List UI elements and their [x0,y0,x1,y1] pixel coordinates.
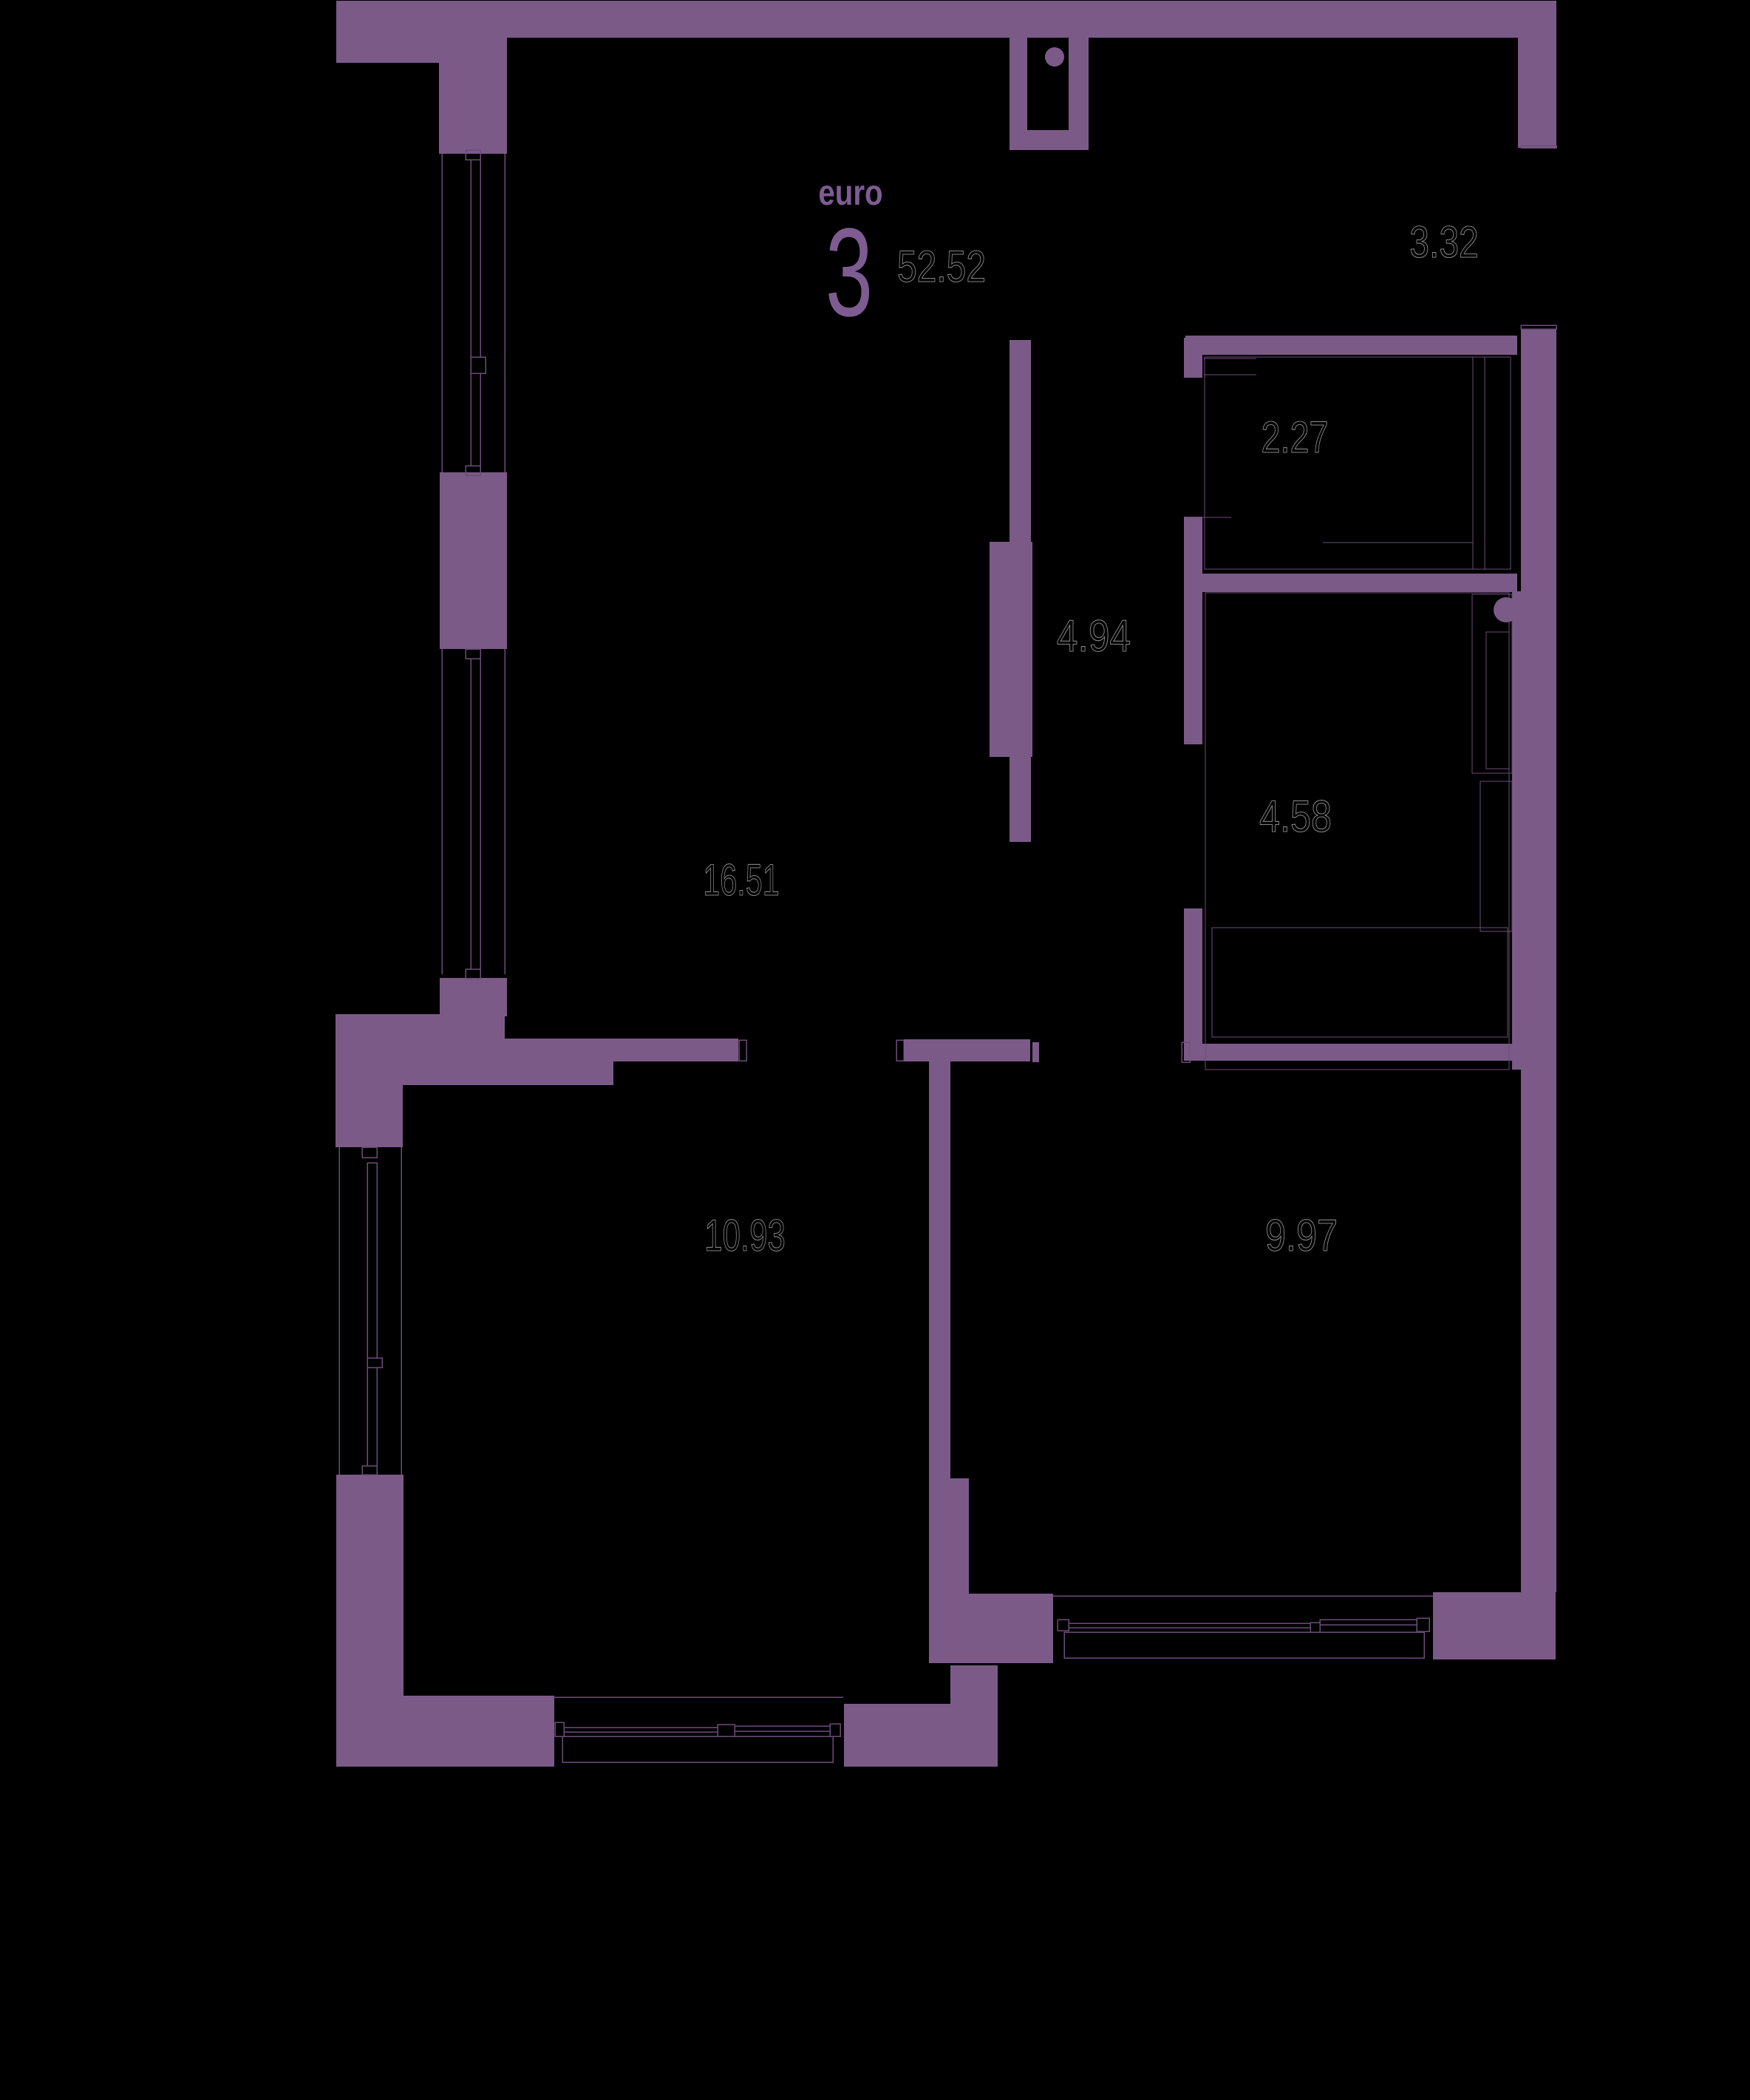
svg-text:3: 3 [825,202,873,343]
svg-text:2.27: 2.27 [1261,412,1328,462]
svg-text:52.52: 52.52 [897,242,986,291]
svg-text:16.51: 16.51 [703,854,780,905]
svg-text:4.58: 4.58 [1259,792,1332,841]
svg-text:10.93: 10.93 [704,1211,786,1260]
svg-text:9.97: 9.97 [1265,1211,1338,1260]
svg-text:4.94: 4.94 [1057,611,1131,661]
svg-text:3.32: 3.32 [1409,217,1478,267]
